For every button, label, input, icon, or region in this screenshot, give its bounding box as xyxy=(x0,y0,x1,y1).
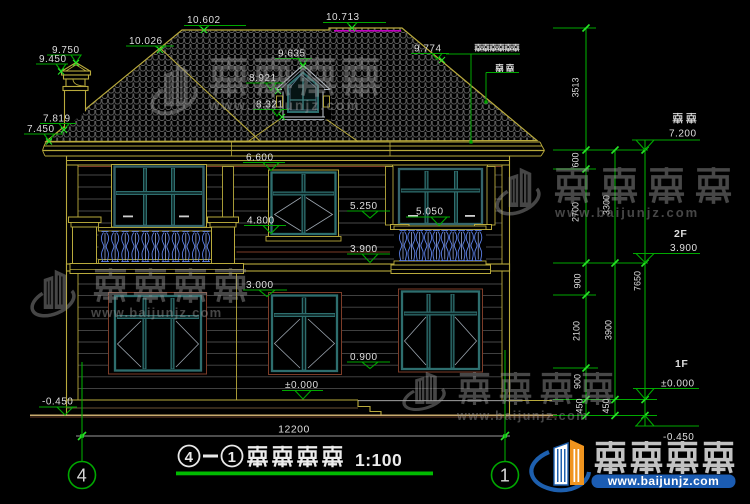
svg-text:5.050: 5.050 xyxy=(416,207,444,218)
svg-text:7650: 7650 xyxy=(632,271,642,291)
svg-text:12200: 12200 xyxy=(278,424,310,436)
svg-text:www.baijunjz.com: www.baijunjz.com xyxy=(90,305,222,320)
svg-text:3900: 3900 xyxy=(603,320,613,340)
svg-text:1F: 1F xyxy=(675,358,688,370)
svg-text:7.819: 7.819 xyxy=(43,114,71,125)
svg-text:±0.000: ±0.000 xyxy=(661,379,695,390)
svg-text:10.713: 10.713 xyxy=(326,12,360,23)
svg-text:2100: 2100 xyxy=(571,321,581,341)
svg-text:7.450: 7.450 xyxy=(27,124,55,135)
svg-text:10.602: 10.602 xyxy=(187,15,221,26)
svg-text:1: 1 xyxy=(500,466,511,486)
svg-text:-0.450: -0.450 xyxy=(663,432,694,443)
svg-text:www.baijunjz.com: www.baijunjz.com xyxy=(554,205,699,220)
svg-text:4.800: 4.800 xyxy=(247,216,275,227)
svg-text:9.635: 9.635 xyxy=(278,49,306,60)
svg-text:4: 4 xyxy=(185,449,194,466)
svg-text:9.774: 9.774 xyxy=(414,44,442,55)
svg-text:±0.000: ±0.000 xyxy=(285,380,319,391)
svg-text:3.900: 3.900 xyxy=(670,243,698,254)
svg-text:-0.450: -0.450 xyxy=(42,397,73,408)
svg-text:9.450: 9.450 xyxy=(39,54,67,65)
svg-text:www.baijunjz.com: www.baijunjz.com xyxy=(456,409,589,423)
svg-text:600: 600 xyxy=(570,152,580,167)
svg-text:2F: 2F xyxy=(674,228,687,240)
svg-text:3513: 3513 xyxy=(570,77,580,97)
svg-text:www.baijunjz.com: www.baijunjz.com xyxy=(208,98,361,113)
svg-text:1: 1 xyxy=(228,449,237,466)
svg-text:0.900: 0.900 xyxy=(350,352,378,363)
svg-text:5.250: 5.250 xyxy=(350,201,378,212)
svg-text:1:100: 1:100 xyxy=(355,450,402,470)
svg-text:4: 4 xyxy=(77,466,88,486)
svg-text:10.026: 10.026 xyxy=(129,36,163,47)
svg-text:900: 900 xyxy=(572,374,582,389)
svg-text:7.200: 7.200 xyxy=(669,129,697,140)
svg-text:3.900: 3.900 xyxy=(350,244,378,255)
svg-text:www.baijunjz.com: www.baijunjz.com xyxy=(607,474,720,488)
svg-text:3.000: 3.000 xyxy=(246,280,274,291)
svg-text:6.600: 6.600 xyxy=(246,153,274,164)
svg-text:900: 900 xyxy=(572,273,582,288)
